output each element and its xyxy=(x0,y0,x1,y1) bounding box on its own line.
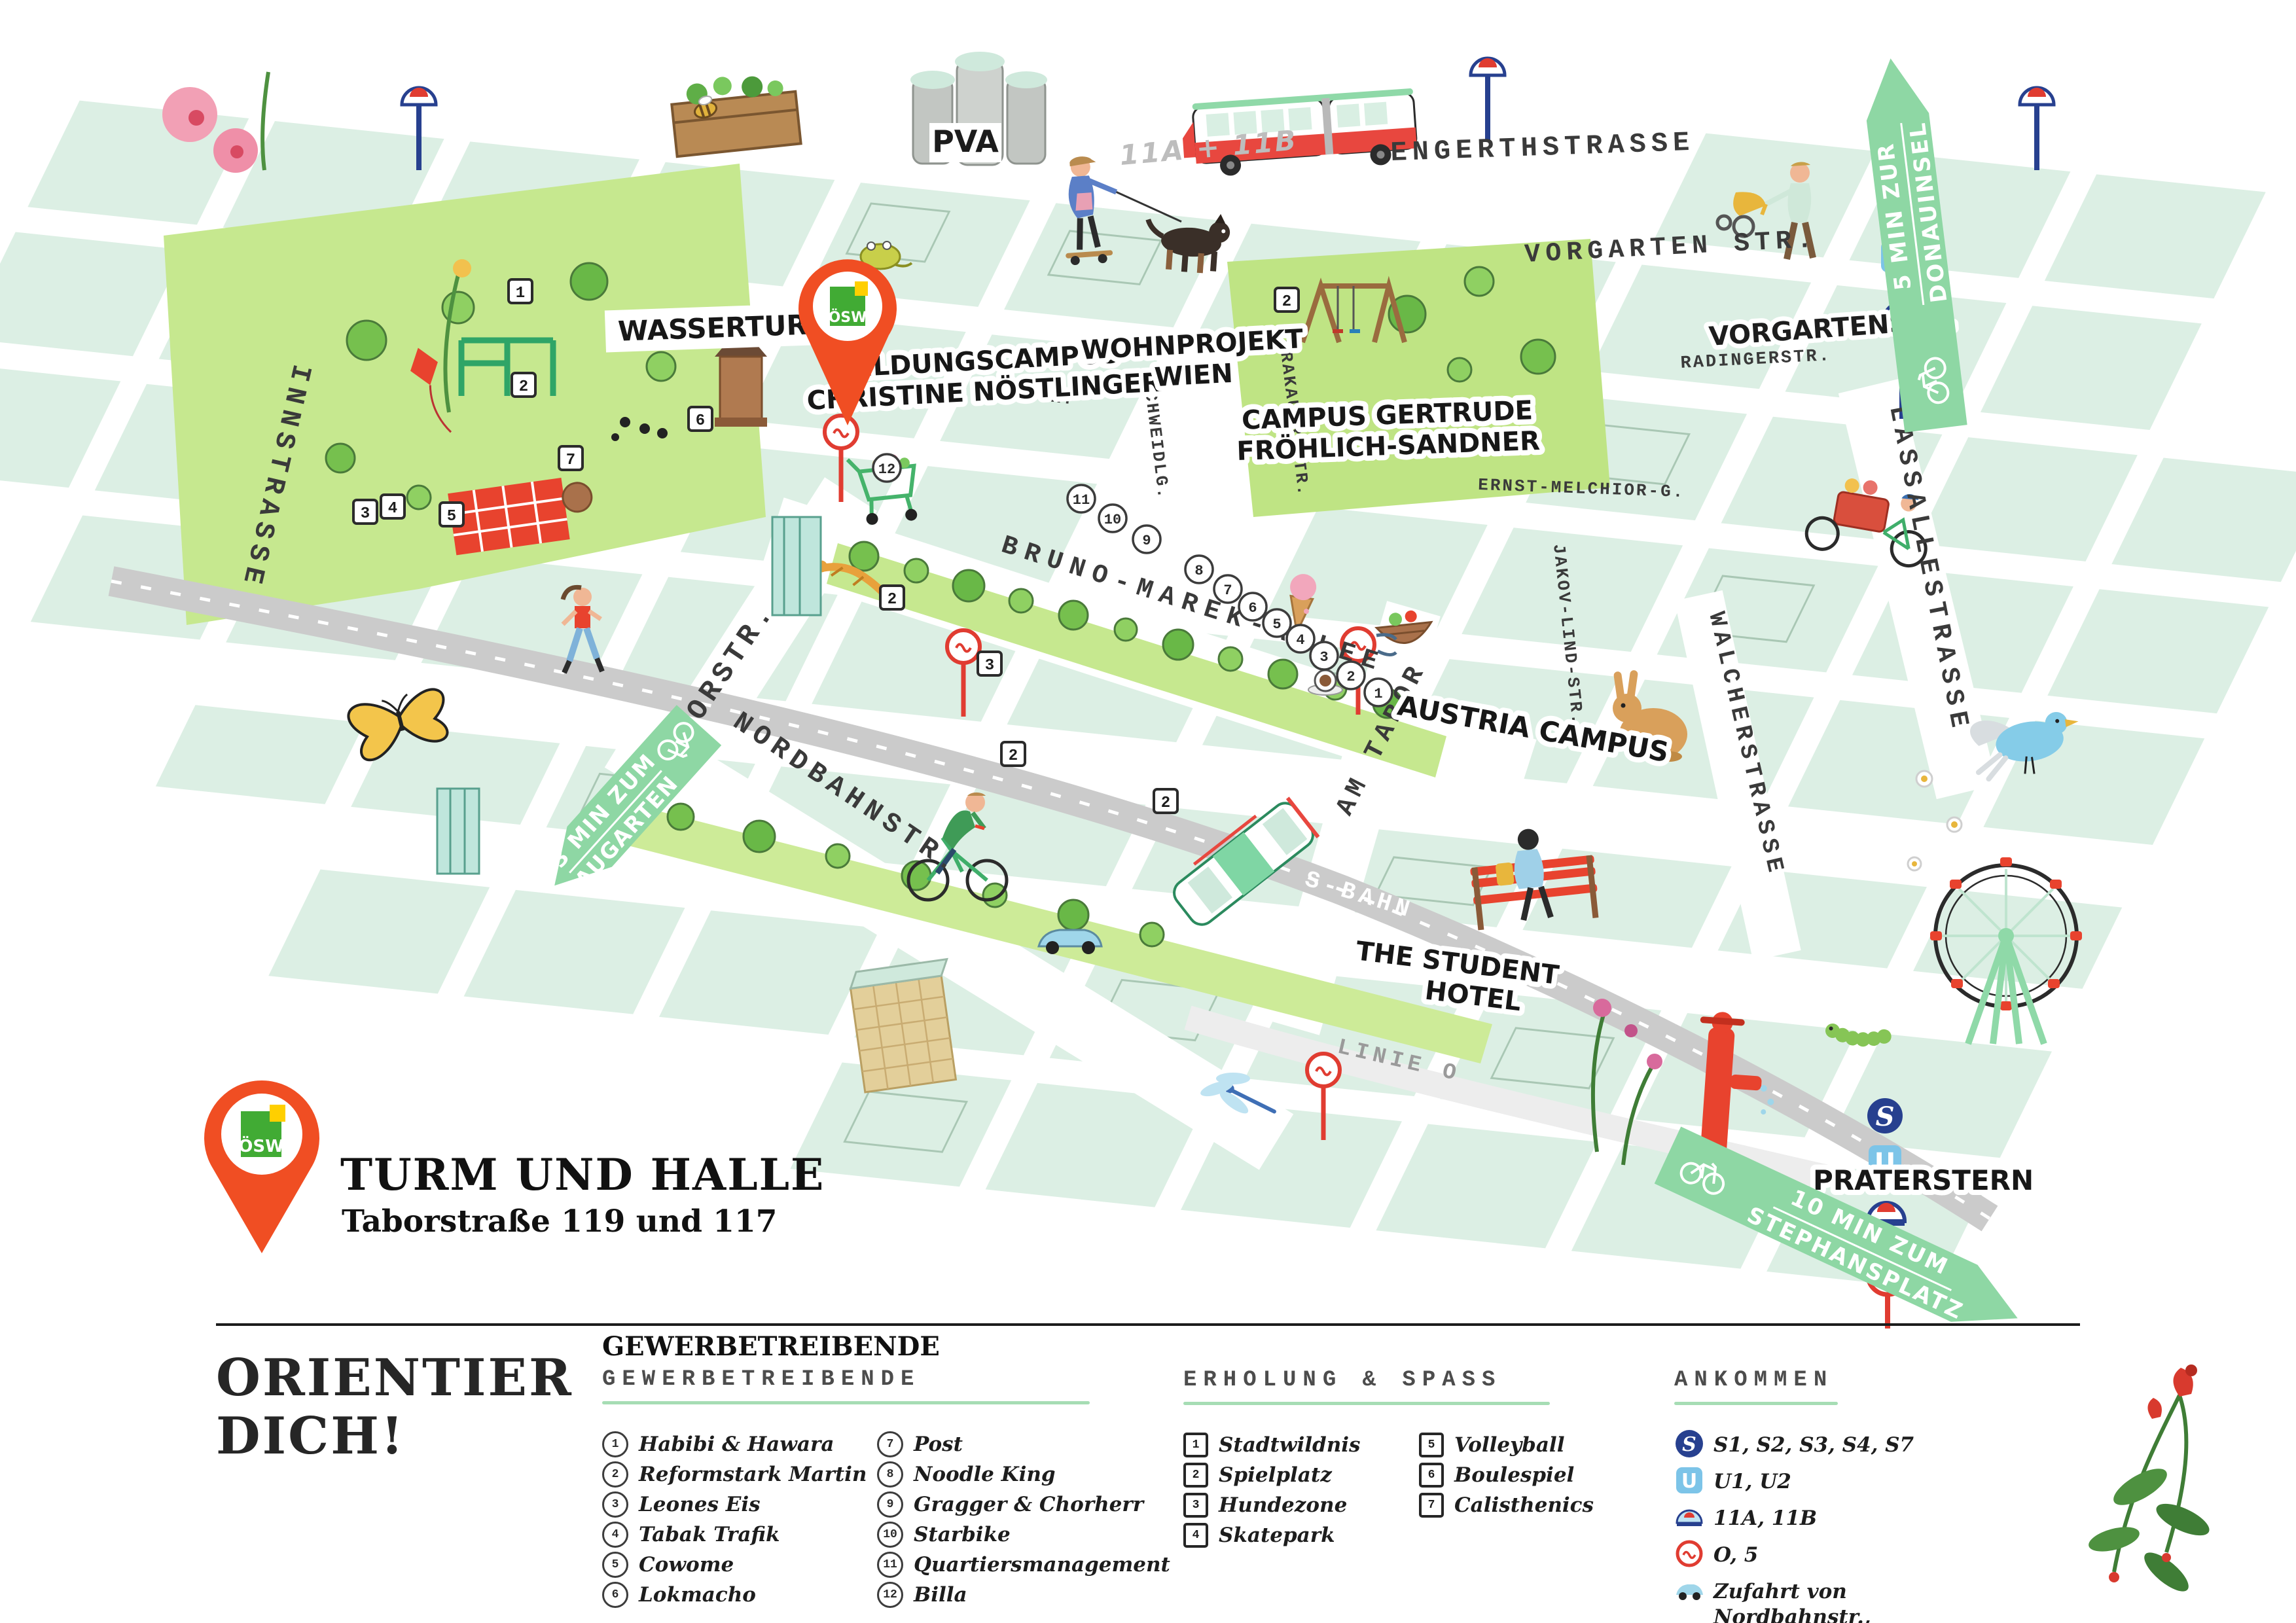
svg-text:12: 12 xyxy=(878,461,895,478)
svg-text:1: 1 xyxy=(1374,686,1382,702)
label-pva: PVA xyxy=(932,124,999,159)
svg-text:6: 6 xyxy=(1248,600,1257,616)
svg-text:2: 2 xyxy=(1282,293,1291,311)
svg-text:7: 7 xyxy=(1223,582,1232,599)
legend-item: 9Gragger & Chorherr xyxy=(877,1489,1170,1520)
svg-text:6: 6 xyxy=(696,412,705,430)
legend-item: U U1, U2 xyxy=(1674,1465,1995,1495)
svg-text:S: S xyxy=(1682,1433,1696,1456)
legend-ankommen: ANKOMMEN S S1, S2, S3, S4, S7 U U1, U2 1… xyxy=(1674,1331,1995,1623)
svg-text:10: 10 xyxy=(1104,512,1121,528)
svg-text:WIEN: WIEN xyxy=(1154,359,1234,393)
legend-item: 1Habibi & Hawara xyxy=(602,1429,857,1459)
svg-text:S: S xyxy=(1876,1101,1895,1132)
street-label-11a-11b: 11A + 11B xyxy=(1119,124,1299,171)
erholung-heading: ERHOLUNG & SPASS xyxy=(1183,1368,1594,1393)
map-canvas: PVA WASSERTURM xyxy=(0,0,2296,1329)
car-icon xyxy=(1674,1575,1704,1605)
svg-text:3: 3 xyxy=(361,505,370,523)
gewerbe-heading: GEWERBETREIBENDE xyxy=(602,1367,1170,1392)
garden-bed xyxy=(670,69,801,156)
project-address: Taborstraße 119 und 117 xyxy=(342,1204,777,1240)
rose-illustration xyxy=(2016,1356,2251,1618)
legend-headline: ORIENTIER DICH! xyxy=(216,1349,573,1466)
legend-item: 5Cowome xyxy=(602,1550,857,1580)
legend-item: 10Starbike xyxy=(877,1520,1170,1550)
legend-item: 2Reformstark Martin xyxy=(602,1459,857,1489)
sbahn-icon: S xyxy=(1674,1429,1704,1459)
legend-item: 12Billa xyxy=(877,1580,1170,1610)
title-pin: ÖSW xyxy=(204,1080,319,1253)
bus-stop-sign xyxy=(1471,58,1505,141)
legend-item: O, 5 xyxy=(1674,1539,1995,1569)
svg-text:2: 2 xyxy=(1009,747,1018,765)
svg-text:3: 3 xyxy=(985,657,994,675)
legend-item: 6Lokmacho xyxy=(602,1580,857,1610)
tram-icon xyxy=(1674,1539,1704,1569)
ankommen-heading: ANKOMMEN xyxy=(1674,1368,1995,1393)
svg-text:5: 5 xyxy=(447,508,456,526)
svg-text:2: 2 xyxy=(888,591,897,609)
svg-text:4: 4 xyxy=(1296,632,1304,649)
legend-item: 8Noodle King xyxy=(877,1459,1170,1489)
green-underline xyxy=(1183,1402,1550,1405)
legend-item: 1Stadtwildnis xyxy=(1183,1430,1399,1460)
legend-item: 7Post xyxy=(877,1429,1170,1459)
legend-item: 3Hundezone xyxy=(1183,1490,1399,1520)
label-praterstern: PRATERSTERN xyxy=(1813,1164,2034,1196)
green-underline xyxy=(1674,1402,1838,1405)
legend-erholung: ERHOLUNG & SPASS 1Stadtwildnis 2Spielpla… xyxy=(1183,1331,1594,1550)
legend-item: 7Calisthenics xyxy=(1419,1490,1594,1520)
svg-text:U: U xyxy=(1681,1470,1697,1493)
svg-text:5: 5 xyxy=(1272,616,1281,633)
svg-text:4: 4 xyxy=(388,500,397,518)
ubahn-icon: U xyxy=(1674,1465,1704,1495)
svg-text:2: 2 xyxy=(1346,669,1355,685)
legend-item: 11A, 11B xyxy=(1674,1502,1995,1532)
legend: ORIENTIER DICH! GEWERBETREIBENDE GEWERBE… xyxy=(0,1323,2296,1623)
legend-item: 4Skatepark xyxy=(1183,1520,1399,1550)
legend-item: 11Quartiersmanagement xyxy=(877,1550,1170,1580)
legend-item: 3Leones Eis xyxy=(602,1489,857,1520)
svg-text:11: 11 xyxy=(1073,492,1090,508)
svg-text:9: 9 xyxy=(1142,533,1151,549)
svg-text:8: 8 xyxy=(1194,563,1203,579)
legend-divider xyxy=(216,1323,2080,1326)
pva-building: PVA xyxy=(910,52,1047,165)
sbahn-icon: S xyxy=(1867,1098,1903,1133)
svg-text:1: 1 xyxy=(516,285,525,302)
project-title: TURM UND HALLE xyxy=(340,1149,825,1200)
legend-gewerbetreibende: GEWERBETREIBENDE GEWERBETREIBENDE 1Habib… xyxy=(602,1331,1170,1610)
street-label-engerthstrasse: ENGERTHSTRASSE xyxy=(1390,127,1695,169)
legend-item: Zufahrt von Nordbahnstr., Lassallestr. u… xyxy=(1674,1575,1995,1623)
legend-item: 5Volleyball xyxy=(1419,1430,1594,1460)
svg-text:3: 3 xyxy=(1319,649,1328,666)
bus-icon xyxy=(1674,1502,1704,1532)
legend-item: 4Tabak Trafik xyxy=(602,1520,857,1550)
poster: PVA WASSERTURM xyxy=(0,0,2296,1623)
svg-text:ÖSW: ÖSW xyxy=(238,1135,284,1156)
pin-logo: ÖSW xyxy=(829,309,867,326)
bus-stop-sign xyxy=(2020,88,2054,170)
legend-item: 6Boulespiel xyxy=(1419,1460,1594,1490)
svg-text:2: 2 xyxy=(519,378,528,396)
green-underline xyxy=(602,1401,1090,1404)
legend-item: 2Spielplatz xyxy=(1183,1460,1399,1490)
gewerbe-overtitle: GEWERBETREIBENDE xyxy=(602,1331,1170,1362)
svg-text:2: 2 xyxy=(1161,794,1170,812)
svg-text:7: 7 xyxy=(566,452,575,469)
legend-item: S S1, S2, S3, S4, S7 xyxy=(1674,1429,1995,1459)
